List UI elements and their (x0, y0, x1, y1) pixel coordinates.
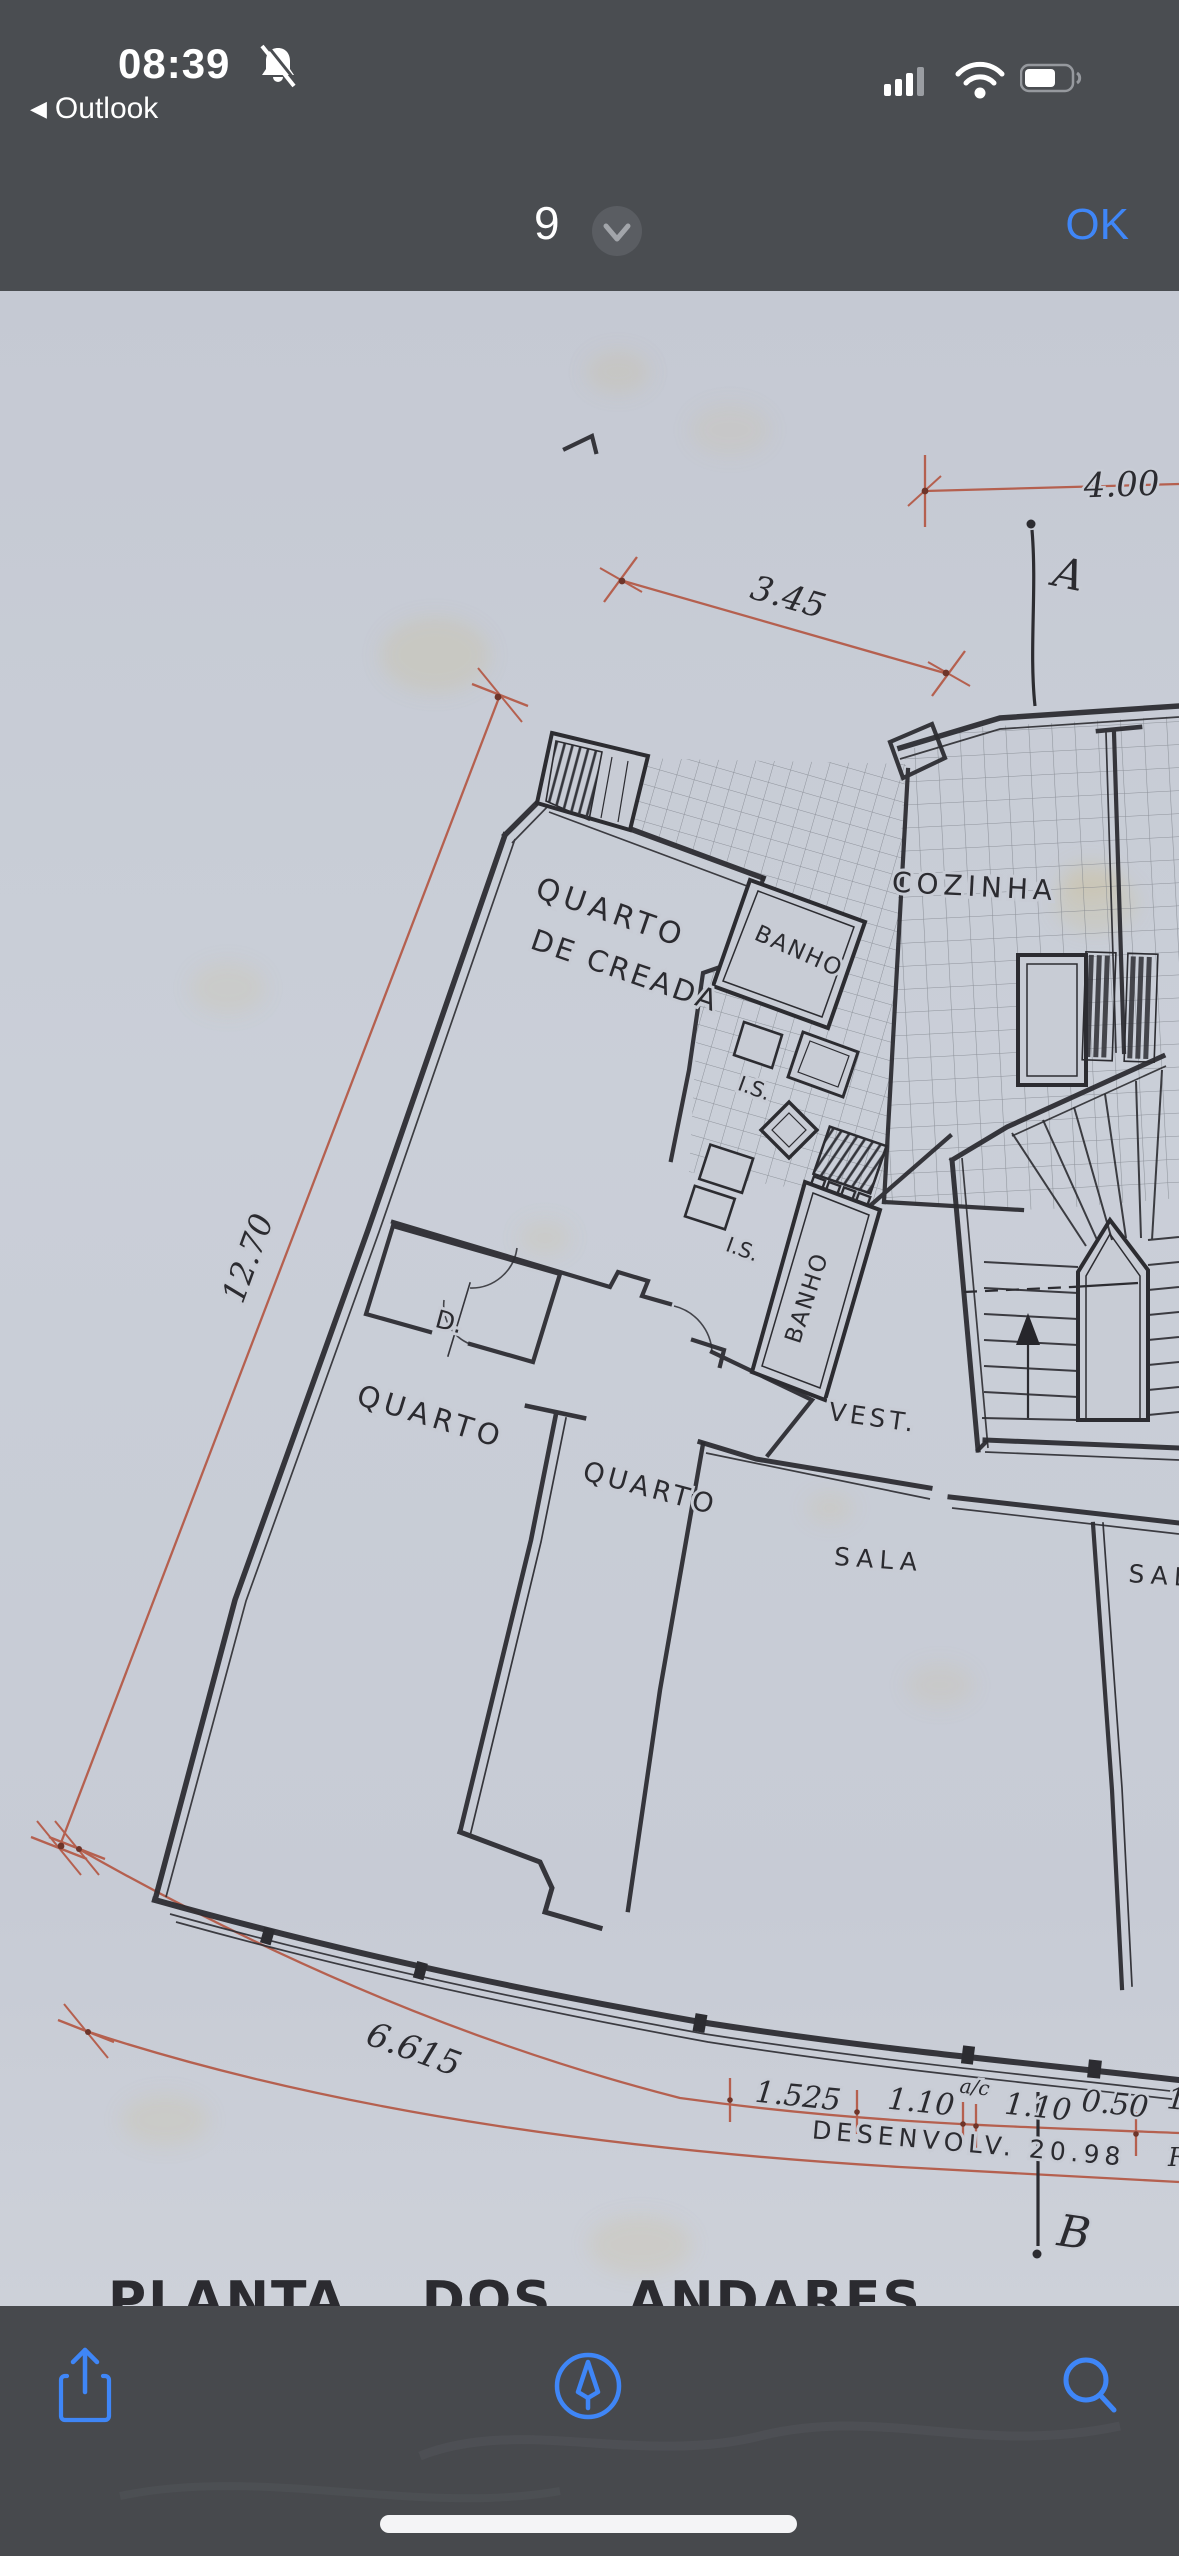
elevator-shaft (1018, 955, 1086, 1085)
status-time: 08:39 (118, 40, 230, 88)
dim-note-ac: a/c (959, 2074, 991, 2101)
wifi-icon (952, 58, 1008, 102)
dim-1-10-a: 1.10 (886, 2082, 956, 2124)
share-icon[interactable] (55, 2346, 115, 2426)
status-and-nav-bar: 08:39 ◀ Outlook 9 (0, 0, 1179, 291)
cellular-signal-icon (876, 60, 946, 100)
page-dropdown-button[interactable] (592, 206, 642, 256)
chevron-down-icon (592, 206, 642, 256)
page-number-indicator: 9 (534, 196, 560, 250)
back-to-outlook-button[interactable]: ◀ Outlook (30, 92, 158, 126)
back-arrow-icon: ◀ (30, 98, 47, 120)
room-label-living: SALA (833, 1542, 924, 1577)
dim-fragment-1: 1. (1165, 2081, 1179, 2119)
notifications-muted-icon (258, 44, 298, 88)
battery-icon (1020, 62, 1086, 94)
markup-icon[interactable] (553, 2346, 623, 2426)
section-marker-b: B (1053, 2205, 1093, 2260)
back-app-label: Outlook (55, 92, 158, 126)
dim-4-00: 4.00 (1082, 464, 1160, 507)
floor-plan-image[interactable]: QUARTO DE CREADA BANHO I.S. I.S. BANHO C… (0, 0, 1179, 2556)
bottom-toolbar (0, 2306, 1179, 2556)
dim-0-50: 0.50 (1080, 2084, 1150, 2126)
dim-1-10-b: 1.10 (1003, 2087, 1073, 2129)
fragment-r: R (1167, 2143, 1179, 2173)
iphone-screen: QUARTO DE CREADA BANHO I.S. I.S. BANHO C… (0, 0, 1179, 2556)
ok-button[interactable]: OK (1065, 200, 1129, 250)
search-icon[interactable] (1056, 2346, 1126, 2426)
home-indicator[interactable] (380, 2515, 797, 2533)
